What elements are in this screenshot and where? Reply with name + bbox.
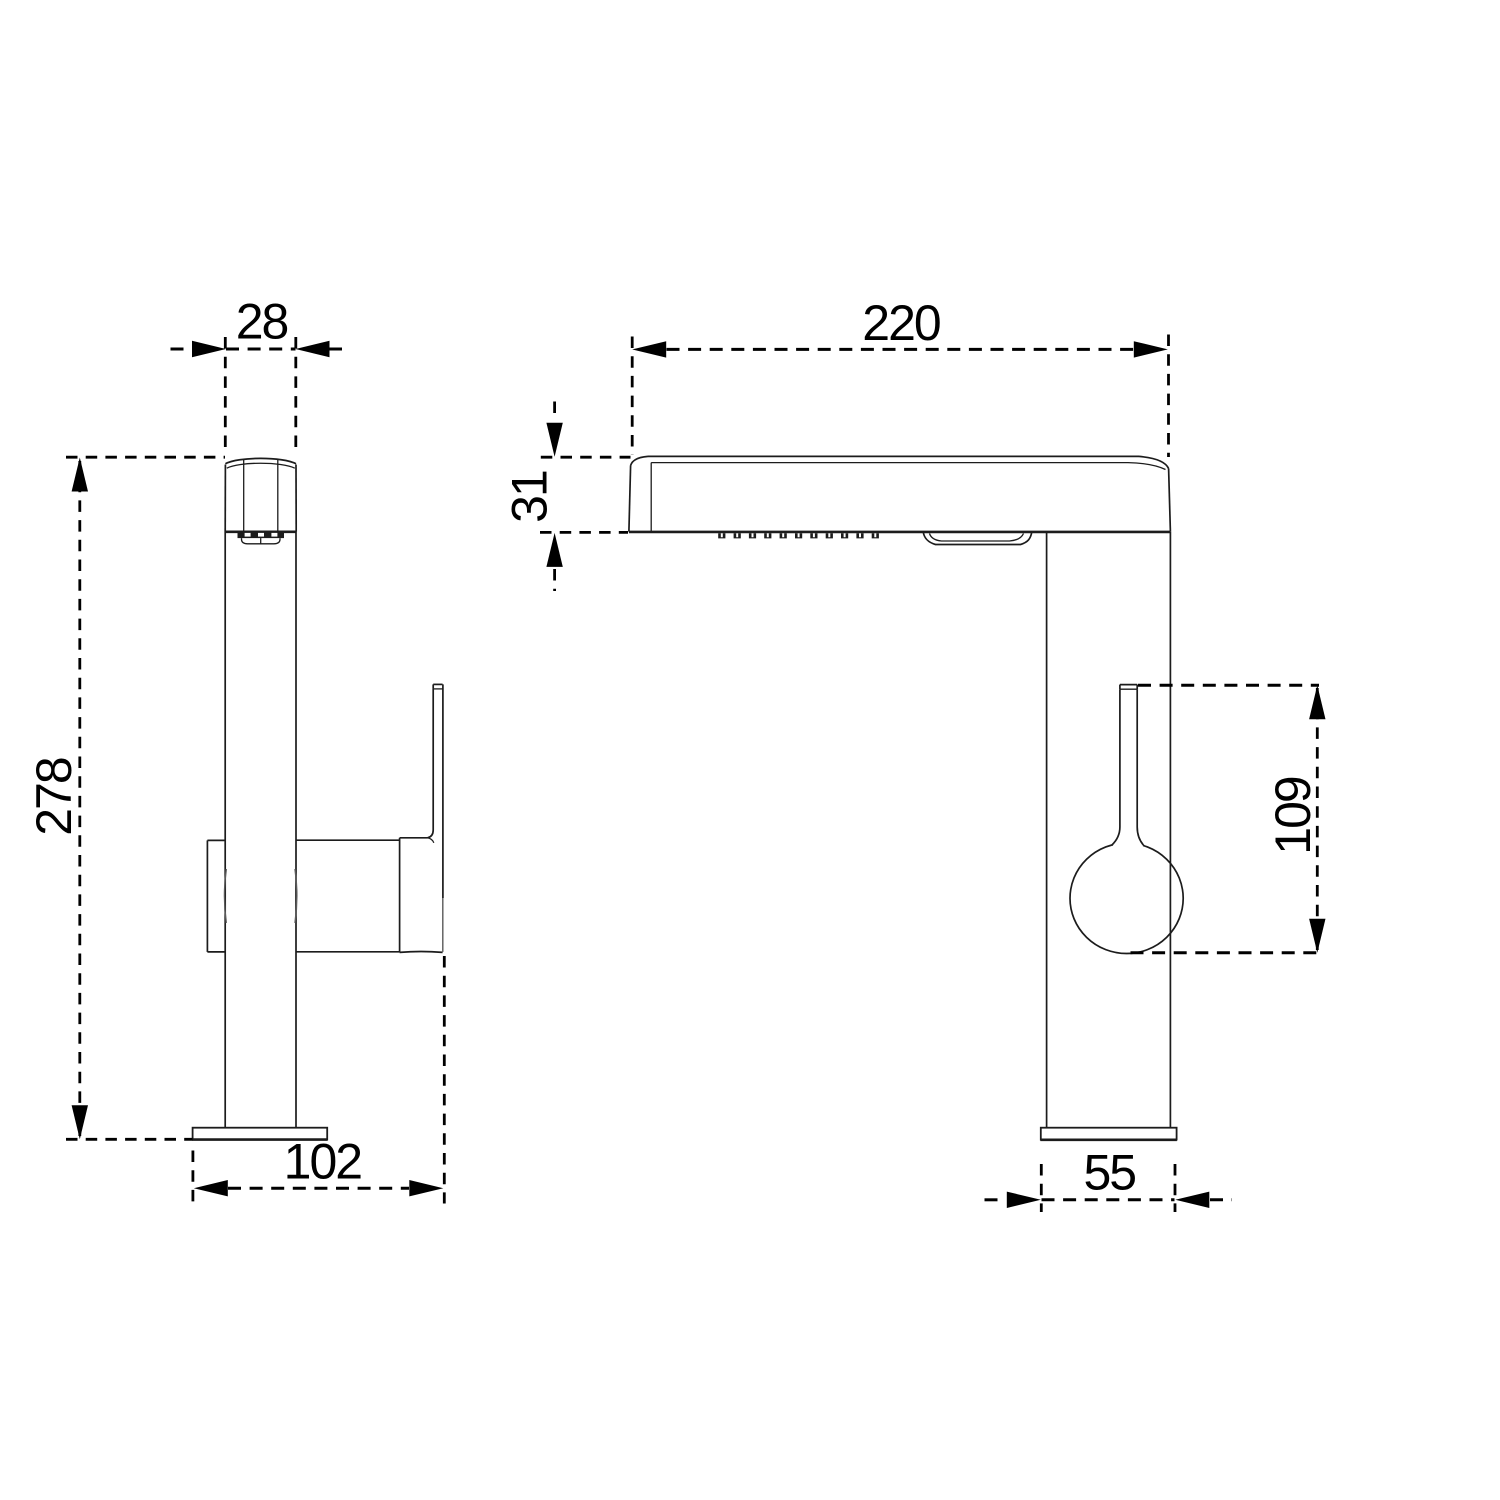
svg-text:55: 55 [1083,1145,1135,1201]
svg-text:28: 28 [236,294,288,350]
svg-text:102: 102 [284,1133,362,1189]
svg-text:220: 220 [862,295,940,351]
svg-text:278: 278 [26,758,82,836]
svg-text:109: 109 [1265,777,1321,855]
svg-text:31: 31 [502,471,558,523]
